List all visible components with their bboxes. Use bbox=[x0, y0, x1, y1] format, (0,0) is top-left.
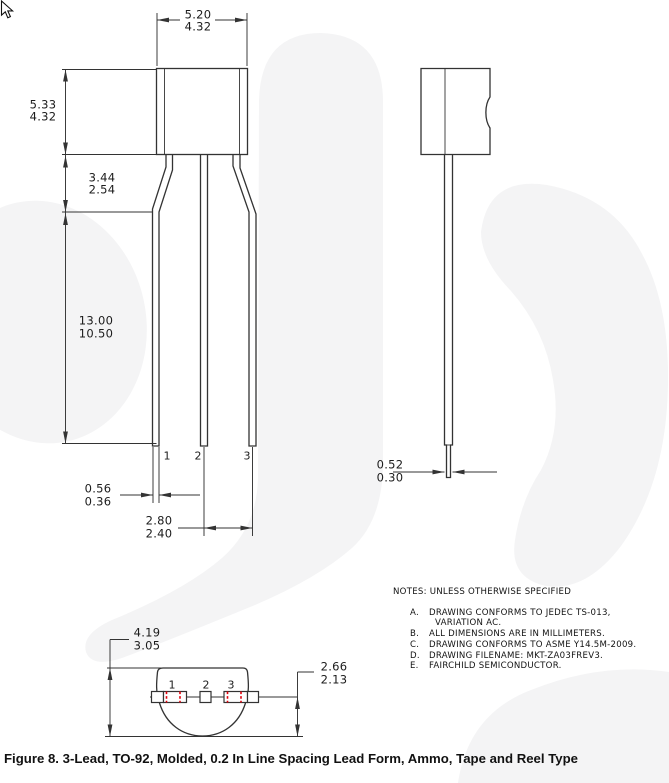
dim-top-width-min: 4.32 bbox=[185, 22, 212, 33]
note-item-b: B. ALL DIMENSIONS ARE IN MILLIMETERS. bbox=[393, 629, 665, 640]
note-item-a: A. DRAWING CONFORMS TO JEDEC TS-013, bbox=[393, 608, 665, 619]
dim-standoff-max: 2.66 bbox=[321, 662, 348, 673]
front-lead-label-3: 3 bbox=[244, 451, 251, 462]
note-item-e: E. FAIRCHILD SEMICONDUCTOR. bbox=[393, 661, 665, 672]
dim-shoulder-min: 2.54 bbox=[89, 185, 116, 196]
bottom-lead-label-1: 1 bbox=[169, 680, 176, 691]
dim-body-depth-max: 4.19 bbox=[134, 628, 161, 639]
front-lead-1 bbox=[153, 155, 173, 447]
dim-lead-width-max: 0.56 bbox=[85, 484, 112, 495]
note-item-c: C. DRAWING CONFORMS TO ASME Y14.5M-2009. bbox=[393, 640, 665, 651]
dim-lead-length-min: 10.50 bbox=[79, 329, 113, 340]
front-lead-label-1: 1 bbox=[164, 451, 171, 462]
bottom-lead-label-3: 3 bbox=[228, 680, 235, 691]
notes-block: NOTES: UNLESS OTHERWISE SPECIFIED A. DRA… bbox=[393, 587, 665, 672]
dim-lead-width-min: 0.36 bbox=[85, 497, 112, 508]
dim-lead-spacing-max: 2.80 bbox=[146, 516, 173, 527]
bottom-lead-label-2: 2 bbox=[203, 680, 210, 691]
bottom-pad-outer-right bbox=[248, 692, 259, 703]
note-item-a-cont: VARIATION AC. bbox=[393, 618, 665, 629]
notes-header: NOTES: UNLESS OTHERWISE SPECIFIED bbox=[393, 587, 665, 598]
figure-caption: Figure 8. 3-Lead, TO-92, Molded, 0.2 In … bbox=[4, 751, 664, 766]
dim-lead-spacing-min: 2.40 bbox=[146, 529, 173, 540]
dim-lead-thickness-min: 0.30 bbox=[377, 473, 404, 484]
mouse-cursor-icon bbox=[0, 0, 16, 20]
dim-standoff-min: 2.13 bbox=[321, 675, 348, 686]
side-view-body bbox=[421, 69, 490, 155]
front-lead-2 bbox=[201, 155, 208, 447]
front-lead-label-2: 2 bbox=[195, 451, 202, 462]
bottom-pad-lead-2 bbox=[200, 692, 211, 703]
datasheet-drawing-page: 5.20 4.32 5.33 4.32 3.44 2.54 13.00 10.5… bbox=[0, 0, 669, 783]
dim-lead-length-max: 13.00 bbox=[79, 316, 113, 327]
dim-body-depth-min: 3.05 bbox=[134, 641, 161, 652]
note-item-d: D. DRAWING FILENAME: MKT-ZA03FREV3. bbox=[393, 651, 665, 662]
front-lead-3 bbox=[233, 155, 256, 447]
dim-lead-thickness-max: 0.52 bbox=[377, 460, 404, 471]
dim-body-height-min: 4.32 bbox=[30, 112, 57, 123]
bottom-pad-outer-left bbox=[152, 692, 164, 703]
side-lead bbox=[445, 155, 453, 478]
front-view-body bbox=[157, 69, 248, 155]
